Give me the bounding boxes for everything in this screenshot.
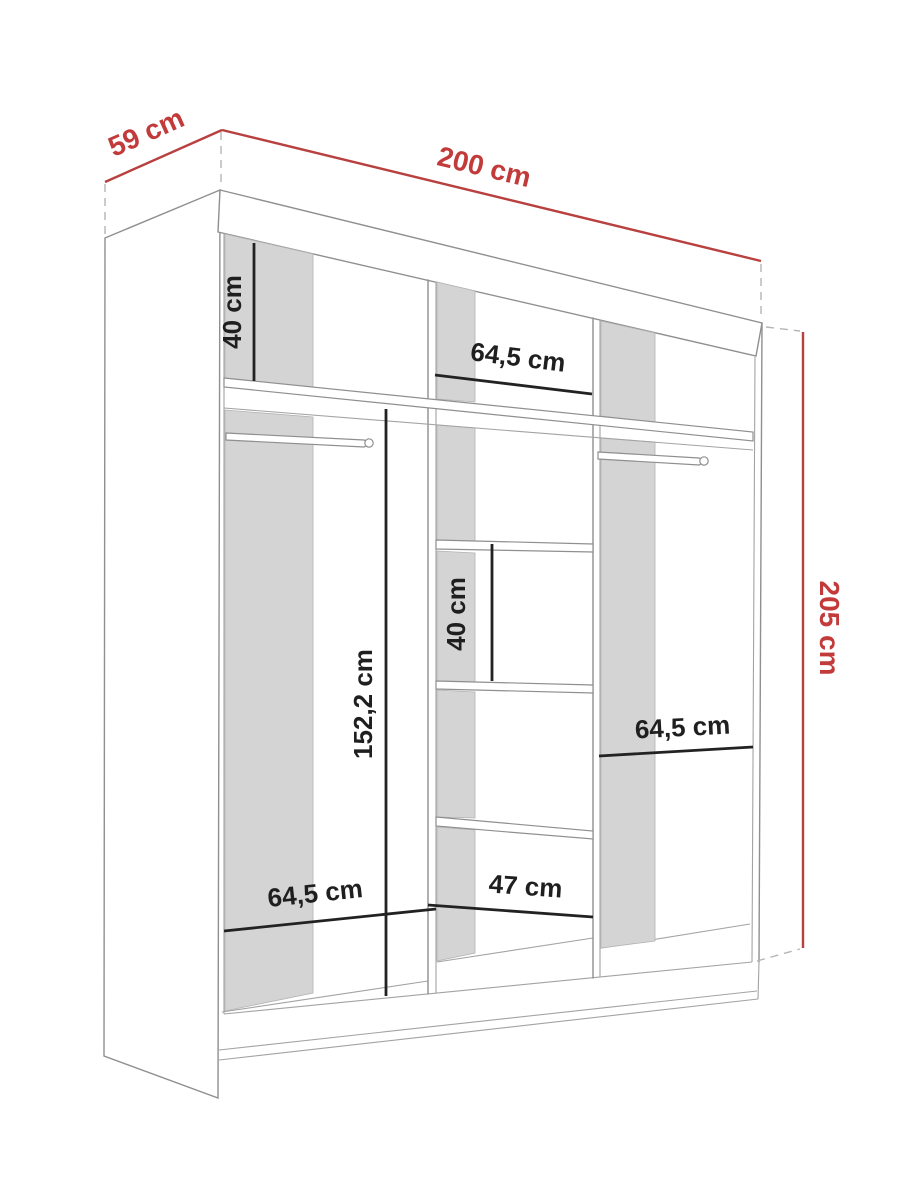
extension-height-bottom [757,949,800,961]
left-side-panel [104,190,220,1098]
wardrobe-dimension-diagram: 59 cm 200 cm 205 cm 40 cm 64,5 cm 152,2 … [0,0,900,1200]
wardrobe-structure [104,190,762,1098]
extension-height-top [766,327,800,331]
strip-middle-1 [437,282,475,402]
divider-1 [428,280,436,994]
dim-height: 205 cm [803,332,845,948]
dim-top-compartment-height-label: 40 cm [217,275,247,349]
plinth-bottom-edge [219,999,758,1060]
right-bottom-corner [758,962,759,999]
strip-right-bottom [601,438,655,948]
dim-height-label: 205 cm [814,581,845,676]
dim-left-hanging-height-label: 152,2 cm [348,649,378,759]
right-outer-edge [759,323,762,962]
dim-depth: 59 cm [104,102,222,182]
dim-middle-section-width-label: 47 cm [488,868,564,903]
diagram-svg: 59 cm 200 cm 205 cm 40 cm 64,5 cm 152,2 … [0,0,900,1200]
strip-middle-5 [437,827,475,961]
right-inner-edge [752,357,755,962]
dim-top-middle-width-label: 64,5 cm [469,336,567,377]
dim-left-hanging-height: 152,2 cm [348,409,386,996]
strip-middle-4 [437,690,475,818]
dim-right-section-width-label: 64,5 cm [634,710,731,745]
dim-depth-label: 59 cm [104,102,189,163]
strip-right-top [601,321,655,422]
strip-middle-2 [437,425,475,541]
strip-left-bottom [225,410,313,1011]
dim-middle-compartment-height-label: 40 cm [441,577,471,651]
middle-shelf-1 [436,540,593,552]
